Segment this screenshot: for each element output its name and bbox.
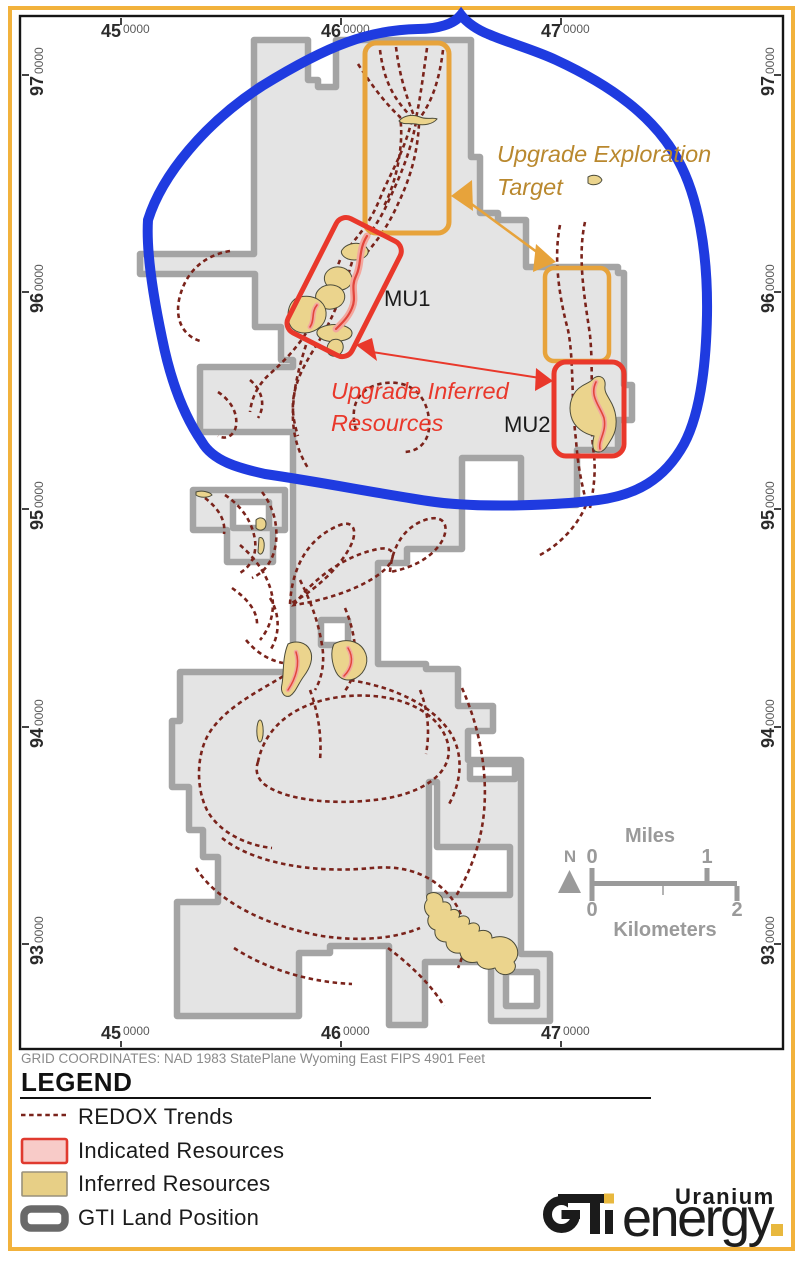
svg-text:0: 0 xyxy=(586,899,597,921)
svg-text:0000: 0000 xyxy=(32,481,46,508)
svg-text:0000: 0000 xyxy=(32,699,46,726)
svg-text:0000: 0000 xyxy=(32,916,46,943)
svg-text:Upgrade Inferred: Upgrade Inferred xyxy=(331,378,510,404)
svg-text:46: 46 xyxy=(321,21,341,41)
svg-text:94: 94 xyxy=(758,728,778,748)
svg-text:0000: 0000 xyxy=(763,47,777,74)
svg-text:47: 47 xyxy=(541,1023,561,1043)
svg-text:Upgrade Exploration: Upgrade Exploration xyxy=(497,141,711,167)
svg-text:0000: 0000 xyxy=(563,22,590,36)
svg-text:0: 0 xyxy=(586,846,597,868)
svg-text:93: 93 xyxy=(27,945,47,965)
svg-text:45: 45 xyxy=(101,1023,121,1043)
svg-text:Uranium: Uranium xyxy=(675,1184,775,1209)
svg-text:Target: Target xyxy=(497,174,564,200)
svg-text:Resources: Resources xyxy=(331,410,444,436)
svg-text:MU1: MU1 xyxy=(384,286,430,311)
svg-text:2: 2 xyxy=(731,899,742,921)
svg-text:1: 1 xyxy=(701,846,712,868)
svg-text:95: 95 xyxy=(758,510,778,530)
svg-text:0000: 0000 xyxy=(763,916,777,943)
svg-text:47: 47 xyxy=(541,21,561,41)
svg-text:0000: 0000 xyxy=(763,699,777,726)
svg-text:Kilometers: Kilometers xyxy=(613,919,716,941)
svg-text:0000: 0000 xyxy=(123,1024,150,1038)
svg-text:93: 93 xyxy=(758,945,778,965)
svg-text:Miles: Miles xyxy=(625,825,675,847)
svg-text:MU2: MU2 xyxy=(504,412,550,437)
svg-text:95: 95 xyxy=(27,510,47,530)
svg-text:0000: 0000 xyxy=(763,481,777,508)
svg-text:96: 96 xyxy=(758,293,778,313)
svg-text:94: 94 xyxy=(27,728,47,748)
svg-text:97: 97 xyxy=(758,76,778,96)
svg-text:0000: 0000 xyxy=(32,264,46,291)
svg-text:0000: 0000 xyxy=(123,22,150,36)
svg-text:N: N xyxy=(564,847,576,866)
svg-text:0000: 0000 xyxy=(763,264,777,291)
svg-text:97: 97 xyxy=(27,76,47,96)
svg-text:0000: 0000 xyxy=(343,1024,370,1038)
svg-text:96: 96 xyxy=(27,293,47,313)
svg-text:45: 45 xyxy=(101,21,121,41)
svg-text:0000: 0000 xyxy=(563,1024,590,1038)
svg-text:46: 46 xyxy=(321,1023,341,1043)
svg-text:0000: 0000 xyxy=(32,47,46,74)
